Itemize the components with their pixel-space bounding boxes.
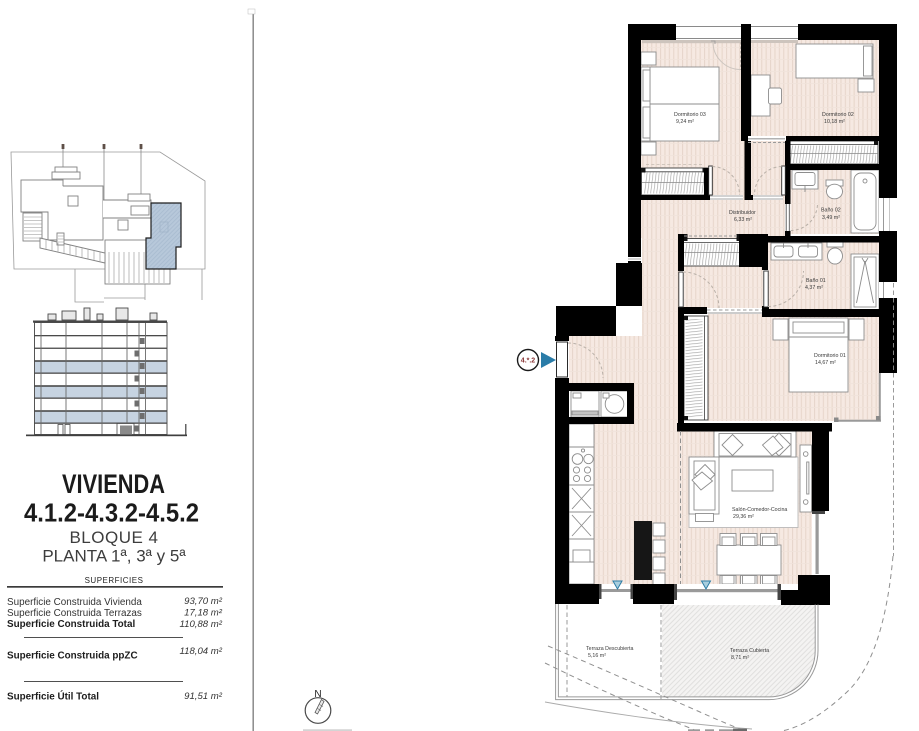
svg-text:110,88 m²: 110,88 m² (180, 619, 223, 630)
svg-text:Baño 01: Baño 01 (806, 278, 826, 284)
svg-text:17,18 m²: 17,18 m² (184, 608, 223, 619)
svg-text:4.1.2-4.3.2-4.5.2: 4.1.2-4.3.2-4.5.2 (24, 500, 199, 528)
svg-text:Distribuidor: Distribuidor (729, 210, 756, 216)
svg-text:Dormitorio 01: Dormitorio 01 (814, 353, 846, 359)
svg-text:4.*.2: 4.*.2 (521, 358, 536, 365)
svg-text:Terraza Cubierta: Terraza Cubierta (730, 648, 769, 654)
svg-text:VIVIENDA: VIVIENDA (62, 469, 165, 499)
svg-text:14,67 m²: 14,67 m² (815, 360, 836, 366)
svg-text:9,24 m²: 9,24 m² (676, 119, 694, 125)
svg-text:4,37 m²: 4,37 m² (805, 285, 823, 291)
svg-text:PLANTA 1ª, 3ª y 5ª: PLANTA 1ª, 3ª y 5ª (42, 547, 186, 566)
svg-text:91,51 m²: 91,51 m² (184, 691, 223, 702)
svg-text:Dormitorio 02: Dormitorio 02 (822, 112, 854, 118)
svg-text:29,36 m²: 29,36 m² (733, 514, 754, 520)
svg-text:118,04 m²: 118,04 m² (180, 646, 223, 657)
svg-text:Superficie Útil Total: Superficie Útil Total (7, 691, 99, 703)
svg-text:SUPERFICIES: SUPERFICIES (85, 576, 144, 585)
svg-text:Dormitorio 03: Dormitorio 03 (674, 112, 706, 118)
svg-text:Terraza Descubierta: Terraza Descubierta (586, 646, 633, 652)
svg-text:Salón-Comedor-Cocina: Salón-Comedor-Cocina (732, 507, 787, 513)
svg-text:Superficie Construida ppZC: Superficie Construida ppZC (7, 651, 138, 662)
svg-text:8,71 m²: 8,71 m² (731, 655, 749, 661)
svg-text:BLOQUE 4: BLOQUE 4 (69, 528, 158, 547)
svg-text:Superficie Construida Total: Superficie Construida Total (7, 619, 135, 630)
svg-text:3,49 m²: 3,49 m² (822, 215, 840, 221)
svg-text:10,18 m²: 10,18 m² (824, 119, 845, 125)
svg-text:93,70 m²: 93,70 m² (184, 596, 223, 607)
svg-text:Baño 02: Baño 02 (821, 208, 841, 214)
svg-text:5,16 m²: 5,16 m² (588, 653, 606, 659)
svg-text:Superficie Construida Vivienda: Superficie Construida Vivienda (7, 597, 142, 608)
svg-text:Superficie Construida Terrazas: Superficie Construida Terrazas (7, 608, 142, 619)
svg-text:6,33 m²: 6,33 m² (734, 217, 752, 223)
